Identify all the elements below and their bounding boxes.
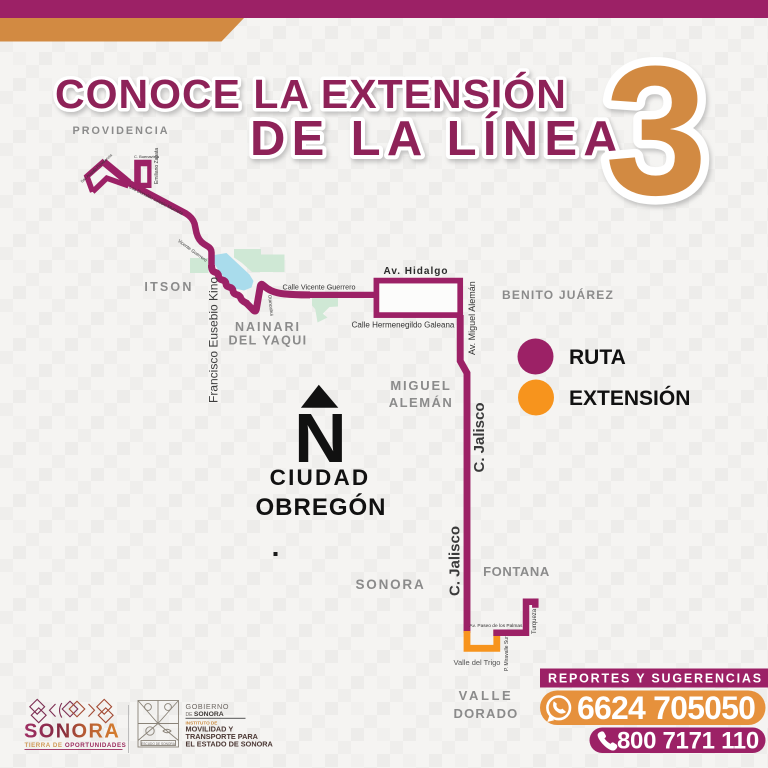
svg-text:Calle Hermenegildo Galeana: Calle Hermenegildo Galeana (352, 321, 455, 330)
svg-text:BENITO JUÁREZ: BENITO JUÁREZ (502, 287, 614, 302)
svg-text:Av. Paseo de los Palmas: Av. Paseo de los Palmas (470, 623, 523, 629)
svg-text:DE LA LÍNEA: DE LA LÍNEA (250, 112, 625, 166)
svg-text:CIUDAD: CIUDAD (270, 465, 371, 490)
svg-text:FONTANA: FONTANA (483, 564, 550, 579)
svg-text:EL ESTADO DE SONORA: EL ESTADO DE SONORA (186, 740, 274, 749)
svg-text:Turqueza: Turqueza (532, 608, 538, 634)
svg-text:P. Miravalle Sur: P. Miravalle Sur (504, 636, 510, 671)
svg-text:C. Jalisco: C. Jalisco (471, 402, 488, 472)
svg-text:DE SONORA: DE SONORA (186, 711, 224, 718)
svg-text:6624 705050: 6624 705050 (577, 690, 755, 726)
svg-text:Valle del Trigo: Valle del Trigo (454, 658, 501, 667)
svg-text:CONOCE LA EXTENSIÓN: CONOCE LA EXTENSIÓN (55, 71, 567, 117)
svg-text:ITSON: ITSON (144, 280, 193, 294)
svg-text:SONORA: SONORA (355, 577, 425, 592)
svg-text:DEL YAQUI: DEL YAQUI (228, 334, 307, 348)
svg-text:ALEMÁN: ALEMÁN (389, 395, 454, 410)
svg-text:C. Buenavista: C. Buenavista (134, 154, 160, 159)
svg-text:DORADO: DORADO (454, 706, 519, 721)
svg-text:VALLE: VALLE (459, 688, 514, 703)
svg-text:Av. Hidalgo: Av. Hidalgo (384, 266, 449, 277)
svg-text:TIERRA DE OPORTUNIDADES: TIERRA DE OPORTUNIDADES (25, 742, 127, 749)
svg-text:MIGUEL: MIGUEL (390, 378, 451, 393)
svg-text:SONORA: SONORA (24, 721, 120, 743)
svg-text:C. Jalisco: C. Jalisco (447, 526, 464, 596)
svg-text:RUTA: RUTA (569, 346, 626, 369)
svg-text:3: 3 (605, 27, 707, 233)
svg-text:Calle Vicente Guerrero: Calle Vicente Guerrero (283, 283, 356, 292)
svg-text:NAINARI: NAINARI (235, 320, 301, 334)
svg-text:GOBIERNO: GOBIERNO (186, 702, 230, 711)
svg-text:PROVIDENCIA: PROVIDENCIA (73, 125, 170, 137)
svg-text:ESCUDO DE SONORA: ESCUDO DE SONORA (141, 742, 176, 746)
svg-text:OBREGÓN: OBREGÓN (255, 493, 386, 521)
svg-text:800 7171 110: 800 7171 110 (617, 728, 759, 755)
svg-text:EXTENSIÓN: EXTENSIÓN (569, 386, 690, 410)
svg-text:Francisco Eusebio Kino: Francisco Eusebio Kino (206, 277, 220, 403)
svg-text:REPORTES Y SUGERENCIAS: REPORTES Y SUGERENCIAS (548, 672, 763, 686)
svg-text:Av. Miguel Alemán: Av. Miguel Alemán (467, 281, 477, 355)
